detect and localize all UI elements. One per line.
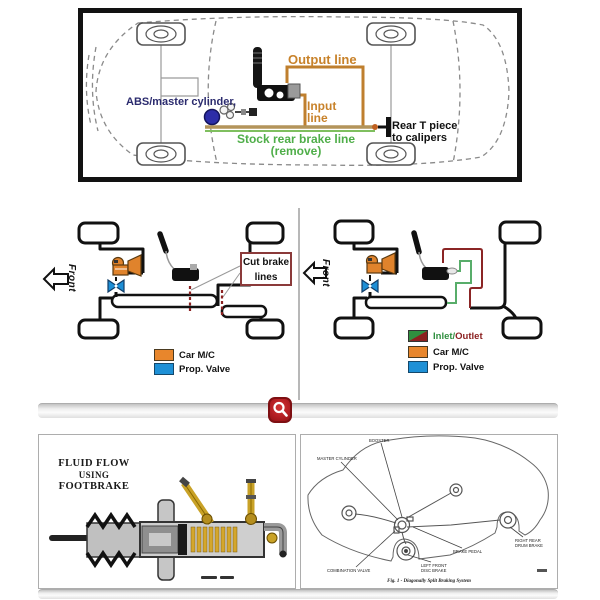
prop-valve-swatch bbox=[154, 363, 174, 375]
front-bumper-arc2 bbox=[92, 47, 98, 131]
front-arrow bbox=[44, 269, 68, 289]
front-label-right: Front bbox=[320, 259, 331, 287]
prop-valve-label: Prop. Valve bbox=[433, 362, 484, 373]
caption-blur bbox=[201, 576, 234, 579]
figure-caption: Fig. 1 - Diagonally Split Braking System bbox=[387, 579, 471, 584]
outlet-line bbox=[443, 249, 482, 308]
brake-pedal-label: BRAKE PEDAL bbox=[453, 549, 483, 554]
inlet-label-part: Inlet/ bbox=[433, 331, 455, 342]
front-disc-label-2: DISC BRAKE bbox=[421, 568, 447, 573]
horizontal-divider-band bbox=[38, 403, 558, 418]
vertical-divider-middle bbox=[298, 208, 300, 400]
magnifier-icon bbox=[270, 399, 290, 421]
brake-pipe-vertical bbox=[246, 481, 257, 525]
rear-t-piece-label: Rear T piece to calipers bbox=[392, 121, 457, 144]
wheels-and-drums bbox=[342, 484, 516, 560]
windshield-curve bbox=[208, 21, 217, 163]
cut-box-line2: lines bbox=[242, 270, 290, 285]
brake-diagram-collage: Output line Input line ABS/master cylind… bbox=[0, 0, 600, 600]
outlet-label-part: Outlet bbox=[455, 331, 482, 342]
middle-right-chassis-diagram bbox=[300, 205, 562, 403]
car-mc-icon bbox=[113, 255, 142, 276]
rear-t-piece bbox=[372, 117, 391, 137]
component-labels: BOOSTER MASTER CYLINDER COMBINATION VALV… bbox=[317, 438, 543, 573]
brake-line-network bbox=[355, 493, 500, 544]
car-mc-icon bbox=[367, 253, 396, 274]
bottom-divider-band bbox=[38, 589, 558, 599]
booster-label: BOOSTER bbox=[369, 438, 389, 443]
inlet-outlet-swatch bbox=[408, 330, 428, 342]
prop-valve-swatch bbox=[408, 361, 428, 373]
master-cylinder-label: MASTER CYLINDER bbox=[317, 456, 357, 461]
prop-valve-icon bbox=[362, 275, 378, 292]
car-profile-outline bbox=[308, 436, 548, 561]
abs-master-cylinder-label: ABS/master cylinder, bbox=[126, 96, 236, 108]
input-line-label: Input line bbox=[307, 100, 336, 124]
legend-car-mc-right: Car M/C bbox=[408, 346, 469, 358]
label-leader-lines bbox=[341, 443, 523, 567]
car-mc-label: Car M/C bbox=[433, 347, 469, 358]
front-rear-line-pill bbox=[366, 297, 446, 308]
cut-box-line1: Cut brake bbox=[242, 255, 290, 270]
prop-valve-label: Prop. Valve bbox=[179, 364, 230, 375]
car-mc-swatch bbox=[154, 349, 174, 361]
rear-t-piece-label-2: to calipers bbox=[392, 133, 457, 145]
piston-slot bbox=[149, 533, 171, 546]
output-line-label: Output line bbox=[288, 52, 357, 67]
inlet-outlet-label: Inlet/Outlet bbox=[433, 331, 483, 342]
cut-brake-lines-callout: Cut brake lines bbox=[240, 252, 292, 286]
input-line-path bbox=[295, 95, 305, 127]
diagonally-split-braking-diagram: BOOSTER MASTER CYLINDER COMBINATION VALV… bbox=[301, 435, 557, 587]
piston-seal bbox=[178, 524, 187, 555]
legend-prop-valve-right: Prop. Valve bbox=[408, 361, 484, 373]
brake-pipe-angled bbox=[181, 479, 212, 524]
front-label-left: Front bbox=[66, 264, 77, 292]
front-bumper-arc bbox=[86, 55, 91, 125]
legend-inlet-outlet: Inlet/Outlet bbox=[408, 330, 483, 342]
master-cylinder-cross-section bbox=[39, 435, 295, 587]
boot-bellows bbox=[87, 523, 141, 557]
stock-line-label-2: (remove) bbox=[236, 144, 356, 158]
handbrake-icon bbox=[160, 234, 199, 281]
prop-valve-icon bbox=[108, 277, 124, 292]
car-mc-label: Car M/C bbox=[179, 350, 215, 361]
zoom-magnifier-button[interactable] bbox=[268, 397, 292, 423]
master-cylinder-dot bbox=[205, 110, 220, 125]
rear-drum-label-2: DRUM BRAKE bbox=[515, 543, 543, 548]
legend-car-mc-left: Car M/C bbox=[154, 349, 215, 361]
car-mc-swatch bbox=[408, 346, 428, 358]
input-line-label-2: line bbox=[307, 112, 336, 124]
legend-prop-valve-left: Prop. Valve bbox=[154, 363, 230, 375]
rear-t-piece-label-1: Rear T piece bbox=[392, 121, 457, 133]
watermark-blur bbox=[537, 569, 547, 572]
outlet-elbow bbox=[264, 527, 287, 558]
handbrake-icon bbox=[414, 233, 457, 280]
inlet-line bbox=[447, 261, 471, 303]
push-rod bbox=[49, 535, 91, 541]
combination-valve-label: COMBINATION VALVE bbox=[327, 568, 370, 573]
